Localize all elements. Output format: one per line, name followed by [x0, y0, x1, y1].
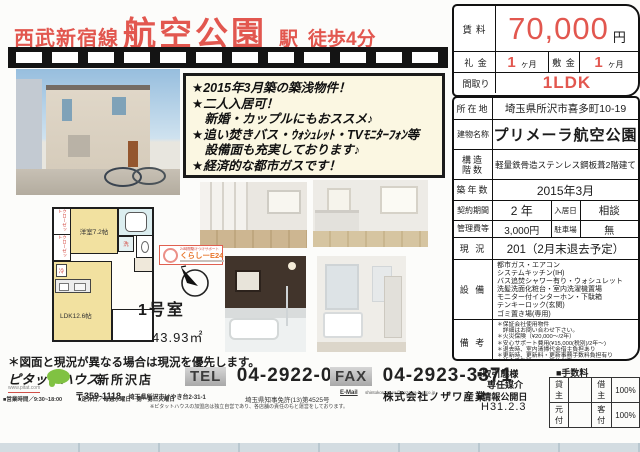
- photo-bicycle: [132, 167, 166, 185]
- layout-value: 1LDK: [496, 73, 638, 93]
- photo-window: [327, 188, 351, 212]
- photo-window: [62, 99, 72, 121]
- property-details-table: 所在地 埼玉県所沢市喜多町10-19 建物名称 プリメーラ航空公園 構造 階数 …: [452, 96, 640, 361]
- entry-cell: [134, 258, 152, 272]
- photo-neighbor-building: [16, 79, 42, 174]
- ldk-room: 冷 LDK12.6帖: [54, 261, 112, 340]
- interior-photo-living-room: [313, 180, 428, 247]
- photo-window: [68, 135, 90, 157]
- key-money-label: 礼 金: [454, 52, 496, 72]
- rent-cell: 70,000 円: [496, 6, 638, 51]
- brand-url: www.pitat.com: [8, 385, 40, 393]
- layout-label: 間取り: [454, 73, 496, 93]
- remarks-list: ＊保証会社使用物件 詳細はお問い合わせ下さい。 ＊火災保険（¥20,000～/2…: [493, 320, 638, 361]
- sales-point: ★二人入居可！: [192, 97, 436, 113]
- current-status-value: 201（2月末退去予定）: [493, 238, 638, 259]
- deposit-label: 敷 金: [548, 52, 580, 72]
- location-value: 埼玉県所沢市喜多町10-19: [493, 98, 638, 119]
- rent-value: 70,000: [508, 11, 609, 47]
- key-money-unit: ヶ月: [521, 59, 537, 70]
- company-name: 株式会社ノザワ産業: [383, 389, 487, 404]
- interior-photo-washroom: [317, 256, 406, 352]
- contract-term-label: 契約期間: [454, 201, 493, 220]
- sales-point: ★2015年3月築の築浅物件！: [192, 81, 436, 97]
- sales-point: ★経済的な都市ガスです！: [192, 159, 436, 175]
- email-label: E-Mail: [340, 390, 358, 396]
- stove-icon: [74, 283, 86, 291]
- photo-window: [380, 186, 418, 214]
- fee-cell-listing-label: 元付: [550, 403, 569, 428]
- movein-value: 相談: [581, 201, 639, 220]
- fee-table-row: 元付 客付 100%: [550, 403, 640, 428]
- laundry-label: 洗: [123, 240, 129, 248]
- publish-date-block: ■情報公開日 H31.2.3: [477, 392, 527, 412]
- franchise-note: ※ピタットハウスの加盟店は独立自営であり、各店舗の責任のもと運営をしております。: [150, 403, 348, 410]
- floor-area-label: 43.93㎡: [152, 327, 204, 346]
- current-status-label: 現 況: [454, 238, 493, 259]
- toilet-icon: [141, 241, 149, 253]
- closet-label: クローゼット: [58, 209, 67, 234]
- support-badge-text: 24時間駆けつけサポート くらしーE24: [180, 248, 224, 262]
- western-room-label: 洋室7.2帖: [80, 226, 109, 236]
- support-badge-fineprint: [180, 260, 224, 262]
- structure-label-line1: 構造: [462, 155, 484, 165]
- business-hours: ■営業時間／9:30~18:00: [3, 395, 62, 403]
- deal-type-value: 専任媒介: [487, 380, 523, 391]
- fee-cell-landlord-label: 貸主: [550, 378, 569, 403]
- photo-closet-doors: [200, 182, 248, 234]
- key-money-value: 1: [507, 54, 515, 71]
- management-fee-label: 管理費等: [454, 221, 493, 237]
- fee-cell-referral-value: 100%: [611, 403, 639, 428]
- fee-cell-tenant-value: 100%: [611, 378, 639, 403]
- photo-floor: [317, 342, 406, 352]
- fridge-cell: 冷: [56, 264, 67, 277]
- equipment-item: ゴミ置き場(専用): [497, 311, 638, 319]
- closet-cell: クローゼット: [54, 209, 71, 235]
- deal-type-block: ■取引態様 専任媒介: [477, 369, 523, 391]
- photo-washbasin: [323, 312, 363, 338]
- building-name-row: 建物名称 プリメーラ航空公園: [454, 120, 638, 150]
- building-name-label: 建物名称: [454, 120, 493, 149]
- fee-cell-listing-value: [568, 403, 591, 428]
- bathtub-icon: [125, 212, 147, 232]
- deposit-unit: ヶ月: [608, 59, 624, 70]
- publish-date-value: H31.2.3: [481, 402, 527, 412]
- photo-shower-hose: [286, 286, 288, 326]
- brand-speech-bubble-icon: [47, 369, 70, 384]
- building-name-value: プリメーラ航空公園: [493, 120, 638, 149]
- fee-table-row: 貸主 借主 100%: [550, 378, 640, 403]
- management-fee-row: 管理費等 3,000円 駐車場 無: [454, 221, 638, 238]
- room-number-label: 1号室: [138, 296, 185, 320]
- sales-point: 新婚・カップルにもおススメ♪: [192, 112, 436, 128]
- bath-cell: [118, 209, 152, 236]
- sales-point: ★追い焚きバス・ｳｫｼｭﾚｯﾄ・TVﾓﾆﾀｰﾌｫﾝ等: [192, 128, 436, 144]
- toilet-cell: [136, 236, 152, 258]
- contract-term-value: 2 年: [493, 201, 551, 220]
- fee-cell-tenant-label: 借主: [591, 378, 611, 403]
- parking-label: 駐車場: [551, 221, 581, 237]
- floor-plan: クローゼット クローゼット 洋室7.2帖 洗 冷 LDK12.6帖: [52, 207, 154, 342]
- photo-bathtub-rim: [229, 318, 279, 340]
- key-money-value-cell: 1 ヶ月: [496, 52, 548, 72]
- structure-row: 構造 階数 軽量鉄骨造ステンレス鋼板葺2階建て: [454, 150, 638, 180]
- age-row: 築年数 2015年3月: [454, 180, 638, 201]
- closet-label: クローゼット: [58, 235, 67, 260]
- support-service-badge: 24時間駆けつけサポート くらしーE24: [159, 245, 223, 265]
- location-label: 所在地: [454, 98, 493, 119]
- laundry-cell: 洗: [118, 236, 134, 252]
- ldk-label: LDK12.6帖: [60, 310, 92, 320]
- film-strip-squares: [16, 52, 440, 63]
- remarks-item: ＊仲介手数料1.08ヶ月分必要: [497, 359, 638, 361]
- photo-window: [235, 270, 261, 292]
- photo-wood-floor: [313, 231, 428, 247]
- fee-cell-landlord-value: [568, 378, 591, 403]
- interior-photo-bathroom: [225, 256, 306, 352]
- fee-table: 貸主 借主 100% 元付 客付 100%: [549, 377, 640, 428]
- photo-light: [288, 262, 296, 270]
- fridge-label: 冷: [59, 267, 65, 275]
- photo-entrance-door: [128, 141, 138, 167]
- closet-cell: クローゼット: [54, 235, 71, 261]
- support-badge-icon: [163, 248, 178, 263]
- management-fee-value: 3,000円: [493, 221, 551, 237]
- photo-mirror-cabinet: [325, 264, 359, 310]
- equipment-list: 都市ガス・エアコン システムキッチン(IH) バス追焚シャワー有り・ウォシュレッ…: [493, 260, 638, 319]
- price-table: 賃料 70,000 円 礼 金 1 ヶ月 敷 金 1 ヶ月 間取り 1LDK: [452, 4, 640, 97]
- photo-window: [112, 97, 126, 115]
- equipment-label: 設 備: [454, 260, 493, 319]
- equipment-item: システムキッチン(IH): [497, 270, 638, 278]
- layout-row: 間取り 1LDK: [454, 73, 638, 93]
- age-value: 2015年3月: [493, 180, 638, 200]
- photo-window: [267, 190, 301, 214]
- rent-row: 賃料 70,000 円: [454, 6, 638, 52]
- deal-type-label: ■取引態様: [477, 369, 523, 380]
- support-badge-title: くらしーE24: [180, 252, 224, 260]
- key-money-row: 礼 金 1 ヶ月 敷 金 1 ヶ月: [454, 52, 638, 73]
- photo-door: [384, 276, 402, 338]
- scan-artifact-strip: [0, 443, 640, 452]
- deposit-value-cell: 1 ヶ月: [580, 52, 638, 72]
- sink-icon: [59, 283, 69, 291]
- deposit-value: 1: [594, 54, 602, 71]
- exterior-photo: [16, 69, 180, 195]
- remarks-row: 備 考 ＊保証会社使用物件 詳細はお問い合わせ下さい。 ＊火災保険（¥20,00…: [454, 320, 638, 361]
- tel-label: TEL: [185, 367, 226, 386]
- parking-value: 無: [581, 221, 639, 237]
- holiday-info: ■定休日／毎週水曜日・第一第三火曜日: [78, 395, 175, 403]
- equipment-item: 都市ガス・エアコン: [497, 262, 638, 270]
- current-status-row: 現 況 201（2月末退去予定）: [454, 238, 638, 260]
- sales-points-box: ★2015年3月築の築浅物件！ ★二人入居可！ 新婚・カップルにもおススメ♪ ★…: [183, 73, 445, 178]
- structure-label: 構造 階数: [454, 150, 493, 179]
- photo-ledge: [225, 308, 306, 318]
- equipment-item: テンキーロック(玄関): [497, 302, 638, 310]
- rent-unit: 円: [613, 27, 626, 46]
- structure-value: 軽量鉄骨造ステンレス鋼板葺2階建て: [493, 150, 638, 179]
- structure-label-line2: 階数: [462, 165, 484, 175]
- kitchen-counter: [55, 279, 91, 293]
- contract-term-row: 契約期間 2 年 入居日 相談: [454, 201, 638, 221]
- age-label: 築年数: [454, 180, 493, 200]
- location-row: 所在地 埼玉県所沢市喜多町10-19: [454, 98, 638, 120]
- fee-cell-referral-label: 客付: [591, 403, 611, 428]
- movein-label: 入居日: [551, 201, 581, 220]
- interior-photo-closet-room: [200, 182, 307, 248]
- equipment-row: 設 備 都市ガス・エアコン システムキッチン(IH) バス追焚シャワー有り・ウォ…: [454, 260, 638, 320]
- film-strip-divider: [8, 47, 448, 68]
- sales-point: 設備面も充実しております♪: [192, 143, 436, 159]
- western-room: 洋室7.2帖: [71, 209, 118, 254]
- rent-label: 賃料: [454, 6, 496, 51]
- remarks-label: 備 考: [454, 320, 493, 361]
